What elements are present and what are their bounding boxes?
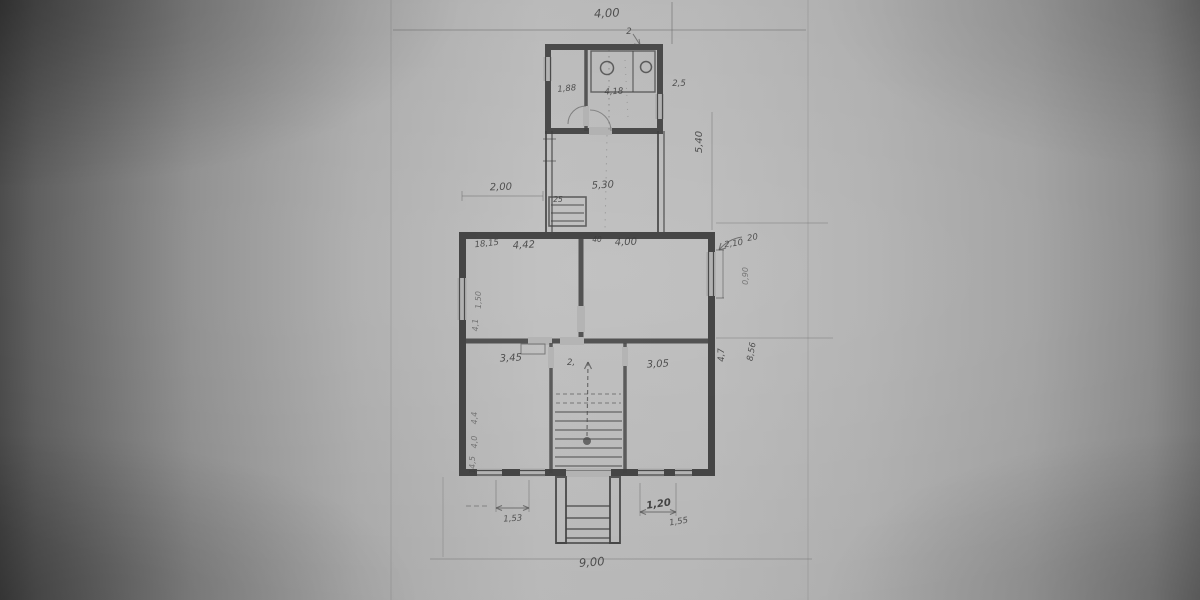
dim-side-depth-total: 8,56 — [745, 341, 758, 362]
floor-plan-drawing: 4,00 2 1,88 4,18 2,5 2,00 5,30 25 5,40 1… — [0, 0, 1200, 600]
stove-ring-icon — [641, 62, 652, 73]
annex-window-left — [543, 57, 552, 81]
floor-plan-photo: 4,00 2 1,88 4,18 2,5 2,00 5,30 25 5,40 1… — [0, 0, 1200, 600]
room-label-annex-right: 4,18 — [604, 86, 624, 97]
room-label-top-right: 4,00 — [615, 237, 638, 249]
dim-window-right: 0,90 — [741, 267, 750, 285]
window-bottom-1 — [477, 468, 502, 477]
dim-side-depth-lower: 4,7 — [717, 348, 727, 362]
dim-bottom-left: 1,53 — [503, 513, 523, 524]
dim-yard-width: 5,30 — [591, 179, 614, 191]
dim-passage-side: 5,40 — [694, 131, 705, 153]
room-label-stair-hall: 2, — [567, 358, 575, 368]
window-bottom-3 — [638, 468, 664, 477]
note-top: 2 — [626, 27, 631, 37]
dim-left-d: 4,0 — [470, 436, 479, 449]
note-partition: 40 — [592, 235, 602, 244]
dim-bottom-right-b: 1,55 — [669, 516, 689, 529]
partition-lower-left — [548, 343, 554, 473]
paper-crease — [605, 50, 628, 230]
room-label-bottom-right: 3,05 — [646, 358, 669, 370]
dim-left-c: 4,4 — [470, 412, 479, 425]
dim-yard-gap: 2,00 — [490, 182, 513, 194]
note-window-a: 20 — [746, 232, 758, 244]
partition-upper — [577, 239, 585, 341]
dim-top-width: 4,00 — [594, 5, 620, 20]
note-corner: 18,15 — [474, 238, 499, 250]
entrance-door — [566, 468, 611, 477]
note-annex-side: 2,5 — [672, 79, 686, 89]
partition-middle — [466, 337, 708, 354]
dim-bottom-width: 9,00 — [578, 554, 605, 570]
dim-left-a: 1,50 — [474, 291, 483, 309]
room-label-top-left: 4,42 — [512, 239, 535, 251]
dim-left-e: 14,5 — [468, 456, 477, 474]
window-left-wall — [457, 278, 467, 320]
window-bottom-2 — [520, 468, 545, 477]
note-back-steps: 25 — [553, 195, 563, 204]
staircase — [555, 362, 622, 466]
window-bottom-4 — [675, 468, 692, 477]
stove-ring-icon — [601, 62, 614, 75]
note-window-b: 2,10 — [724, 238, 744, 251]
paper-edges — [391, 0, 808, 600]
dimension-marks — [466, 34, 742, 516]
main-building-outline — [457, 236, 724, 478]
room-label-bottom-left: 3,45 — [499, 352, 522, 364]
front-porch-steps — [556, 477, 620, 543]
annex-window-right — [655, 94, 664, 119]
window-right-wall — [706, 250, 724, 298]
dim-bottom-right-a: 1,20 — [646, 497, 672, 511]
partition-lower-right — [622, 343, 628, 473]
dim-left-b: 4,1 — [471, 319, 480, 332]
room-label-annex-left: 1,88 — [557, 83, 577, 95]
